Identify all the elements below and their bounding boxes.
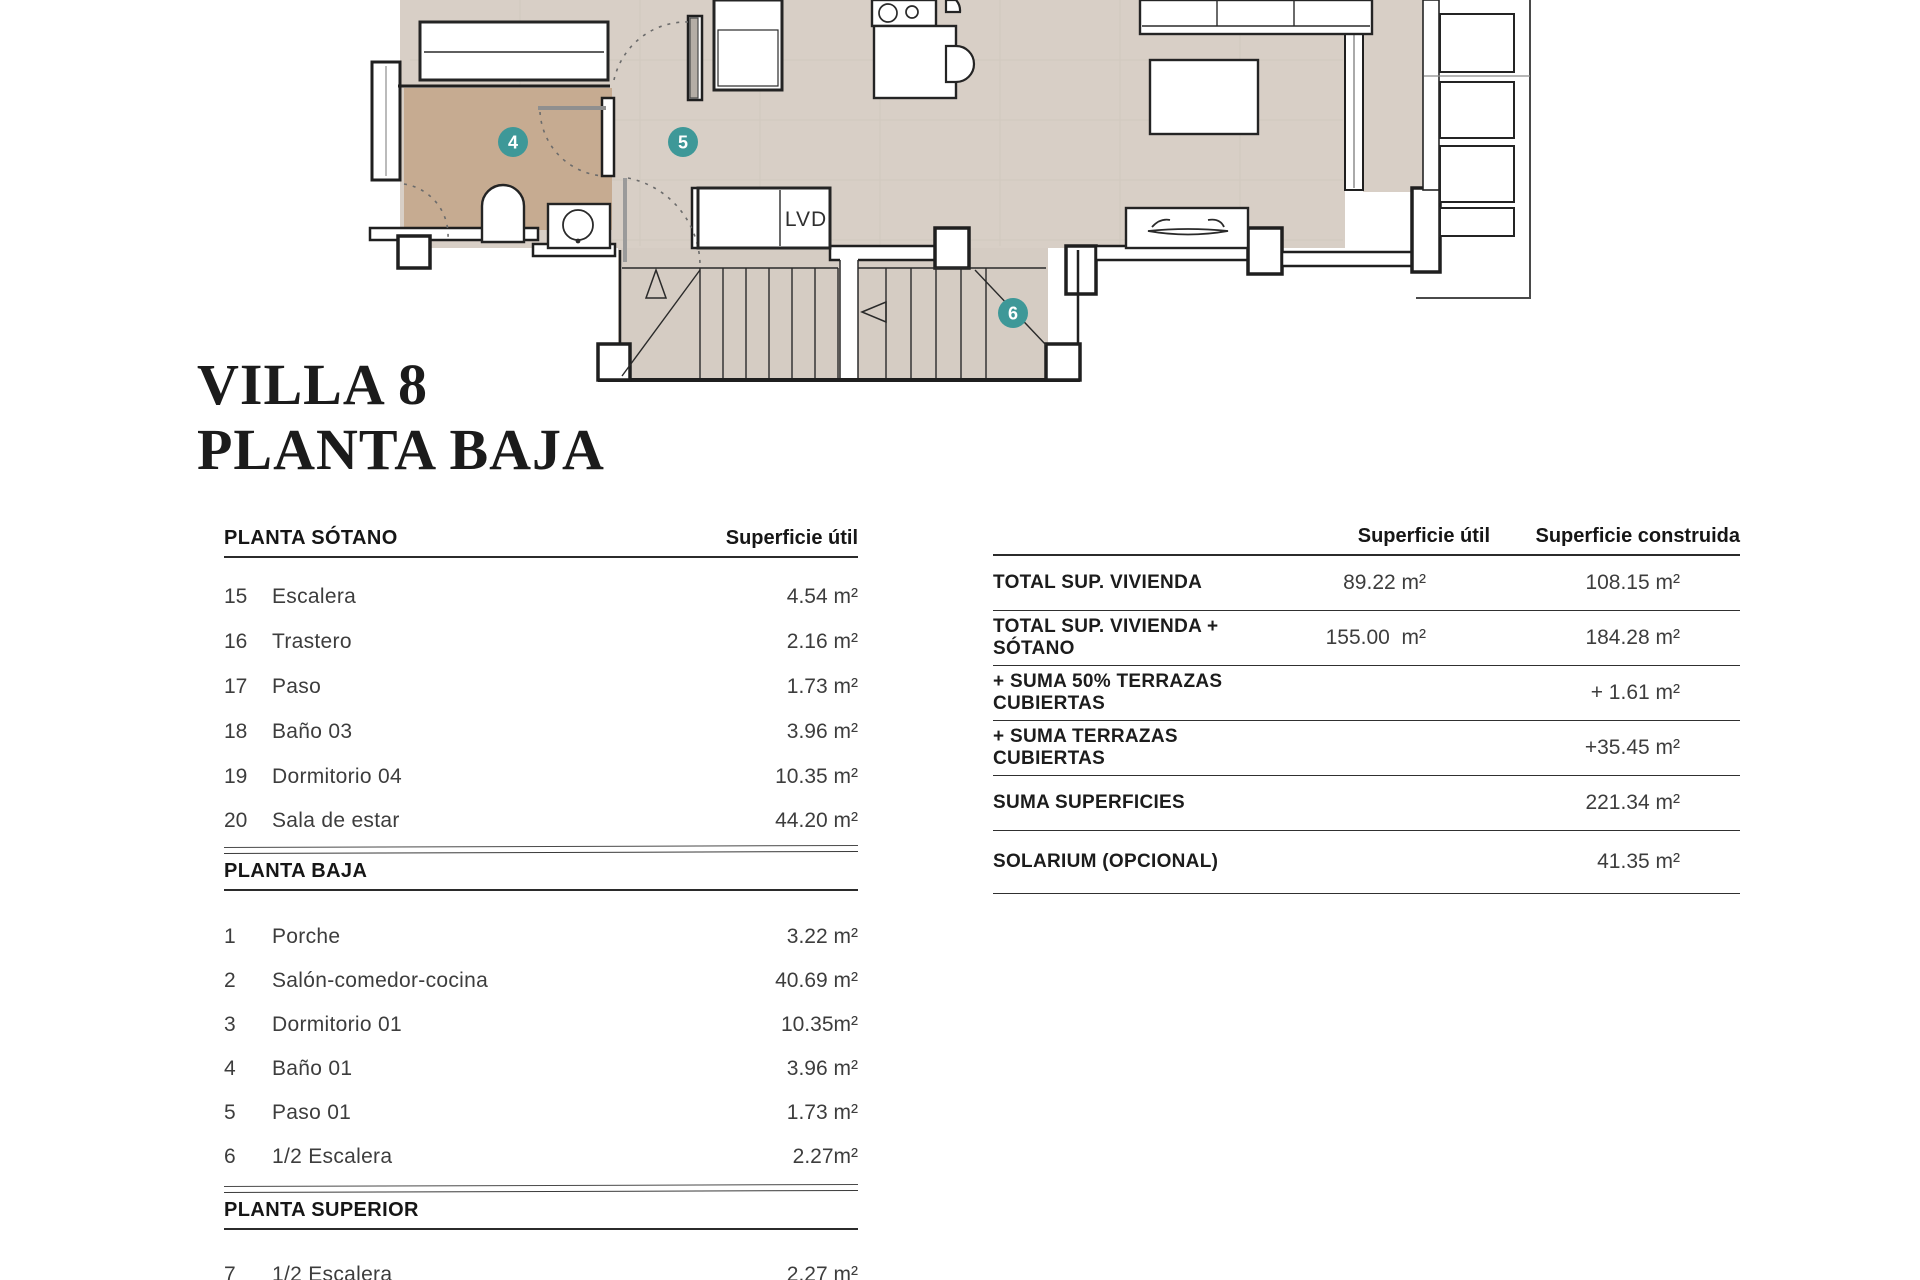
brochure-page: LVD <box>0 0 1920 1280</box>
table-header: Superficie útil Superficie construida <box>993 514 1740 556</box>
coffee-table <box>1150 60 1258 134</box>
stool <box>946 0 960 12</box>
room-area: 3.96 m² <box>787 720 858 744</box>
room-name: 1/2 Escalera <box>272 1145 793 1169</box>
room-marker-6: 6 <box>998 298 1028 328</box>
sink <box>548 204 610 248</box>
wardrobe <box>714 0 782 90</box>
room-area: 2.27m² <box>793 1145 858 1169</box>
svg-text:5: 5 <box>678 133 688 153</box>
room-area: 1.73 m² <box>787 1101 858 1125</box>
summary-construida: 108.15 m² <box>1430 571 1740 595</box>
floor-plan: LVD <box>0 0 1920 382</box>
room-area: 4.54 m² <box>787 585 858 609</box>
room-number: 15 <box>224 585 272 609</box>
summary-construida: 41.35 m² <box>1430 850 1740 874</box>
column-header-superficie-construida: Superficie construida <box>1490 525 1740 548</box>
summary-row: + SUMA TERRAZAS CUBIERTAS +35.45 m² <box>993 721 1740 776</box>
room-name: Dormitorio 04 <box>272 765 775 789</box>
room-area: 3.22 m² <box>787 925 858 949</box>
table-header: PLANTA SUPERIOR <box>224 1192 858 1230</box>
area-table-superior: PLANTA SUPERIOR 7 1/2 Escalera 2.27 m² <box>224 1185 858 1280</box>
table-row: 16 Trastero 2.16 m² <box>224 619 858 664</box>
room-name: Paso <box>272 675 787 699</box>
room-number: 5 <box>224 1101 272 1125</box>
room-number: 4 <box>224 1057 272 1081</box>
room-area: 10.35 m² <box>775 765 858 789</box>
summary-label: + SUMA 50% TERRAZAS CUBIERTAS <box>993 671 1236 715</box>
closet-label: LVD <box>785 208 827 231</box>
table-row: 4 Baño 01 3.96 m² <box>224 1047 858 1091</box>
summary-label: SUMA SUPERFICIES <box>993 792 1236 814</box>
room-number: 19 <box>224 765 272 789</box>
table-row: 19 Dormitorio 04 10.35 m² <box>224 754 858 799</box>
room-marker-5: 5 <box>668 127 698 157</box>
table-row: 7 1/2 Escalera 2.27 m² <box>224 1252 858 1280</box>
summary-row: + SUMA 50% TERRAZAS CUBIERTAS + 1.61 m² <box>993 666 1740 721</box>
room-number: 2 <box>224 969 272 993</box>
toilet <box>482 185 524 242</box>
room-number: 16 <box>224 630 272 654</box>
summary-label: + SUMA TERRAZAS CUBIERTAS <box>993 726 1236 770</box>
room-name: Salón-comedor-cocina <box>272 969 775 993</box>
page-title-line1: VILLA 8 <box>197 352 605 417</box>
svg-text:4: 4 <box>508 133 518 153</box>
sofa <box>1140 0 1372 34</box>
section-header-baja: PLANTA BAJA <box>224 860 367 883</box>
section-header-superior: PLANTA SUPERIOR <box>224 1199 419 1222</box>
area-table-sotano: PLANTA SÓTANO Superficie útil 15 Escaler… <box>224 516 858 843</box>
summary-construida: 184.28 m² <box>1430 626 1740 650</box>
room-number: 7 <box>224 1263 272 1280</box>
table-row: 6 1/2 Escalera 2.27m² <box>224 1135 858 1179</box>
column-header-superficie-util: Superficie útil <box>726 527 858 550</box>
room-name: Dormitorio 01 <box>272 1013 781 1037</box>
table-row: 5 Paso 01 1.73 m² <box>224 1091 858 1135</box>
room-area: 2.27 m² <box>787 1263 858 1280</box>
room-area: 1.73 m² <box>787 675 858 699</box>
room-name: Paso 01 <box>272 1101 787 1125</box>
table-row: 18 Baño 03 3.96 m² <box>224 709 858 754</box>
column-header-superficie-util: Superficie útil <box>1300 525 1490 548</box>
bed <box>420 22 608 80</box>
section-header-sotano: PLANTA SÓTANO <box>224 527 398 550</box>
svg-text:6: 6 <box>1008 304 1018 324</box>
summary-row: TOTAL SUP. VIVIENDA 89.22 m² 108.15 m² <box>993 556 1740 611</box>
table-header: PLANTA BAJA <box>224 853 858 891</box>
table-row: 3 Dormitorio 01 10.35m² <box>224 1003 858 1047</box>
table-row: 2 Salón-comedor-cocina 40.69 m² <box>224 959 858 1003</box>
room-area: 3.96 m² <box>787 1057 858 1081</box>
summary-table: Superficie útil Superficie construida TO… <box>993 514 1740 894</box>
table-row: 17 Paso 1.73 m² <box>224 664 858 709</box>
page-title-line2: PLANTA BAJA <box>197 417 605 482</box>
summary-construida: +35.45 m² <box>1430 736 1740 760</box>
summary-construida: + 1.61 m² <box>1430 681 1740 705</box>
summary-label: TOTAL SUP. VIVIENDA + SÓTANO <box>993 616 1236 660</box>
room-marker-4: 4 <box>498 127 528 157</box>
room-name: 1/2 Escalera <box>272 1263 787 1280</box>
room-number: 17 <box>224 675 272 699</box>
page-title: VILLA 8 PLANTA BAJA <box>197 352 605 482</box>
table-row: 1 Porche 3.22 m² <box>224 915 858 959</box>
area-table-baja: PLANTA BAJA 1 Porche 3.22 m² 2 Salón-com… <box>224 846 858 1179</box>
table-header: PLANTA SÓTANO Superficie útil <box>224 516 858 558</box>
table-row: 15 Escalera 4.54 m² <box>224 574 858 619</box>
room-number: 1 <box>224 925 272 949</box>
room-area: 40.69 m² <box>775 969 858 993</box>
summary-util: 155.00 m² <box>1236 626 1430 650</box>
room-name: Trastero <box>272 630 787 654</box>
console-table <box>1126 208 1248 248</box>
room-name: Porche <box>272 925 787 949</box>
table-row: 20 Sala de estar 44.20 m² <box>224 799 858 843</box>
room-number: 18 <box>224 720 272 744</box>
room-number: 6 <box>224 1145 272 1169</box>
room-name: Sala de estar <box>272 809 775 833</box>
summary-row: TOTAL SUP. VIVIENDA + SÓTANO 155.00 m² 1… <box>993 611 1740 666</box>
laundry-closet: LVD <box>698 188 830 248</box>
summary-row: SUMA SUPERFICIES 221.34 m² <box>993 776 1740 831</box>
summary-row: SOLARIUM (OPCIONAL) 41.35 m² <box>993 831 1740 894</box>
stool <box>946 46 974 82</box>
room-area: 2.16 m² <box>787 630 858 654</box>
room-number: 20 <box>224 809 272 833</box>
summary-label: TOTAL SUP. VIVIENDA <box>993 572 1236 594</box>
room-area: 10.35m² <box>781 1013 858 1037</box>
room-name: Baño 03 <box>272 720 787 744</box>
room-name: Baño 01 <box>272 1057 787 1081</box>
summary-util: 89.22 m² <box>1236 571 1430 595</box>
room-number: 3 <box>224 1013 272 1037</box>
room-name: Escalera <box>272 585 787 609</box>
room-area: 44.20 m² <box>775 809 858 833</box>
summary-label: SOLARIUM (OPCIONAL) <box>993 851 1236 873</box>
summary-construida: 221.34 m² <box>1430 791 1740 815</box>
